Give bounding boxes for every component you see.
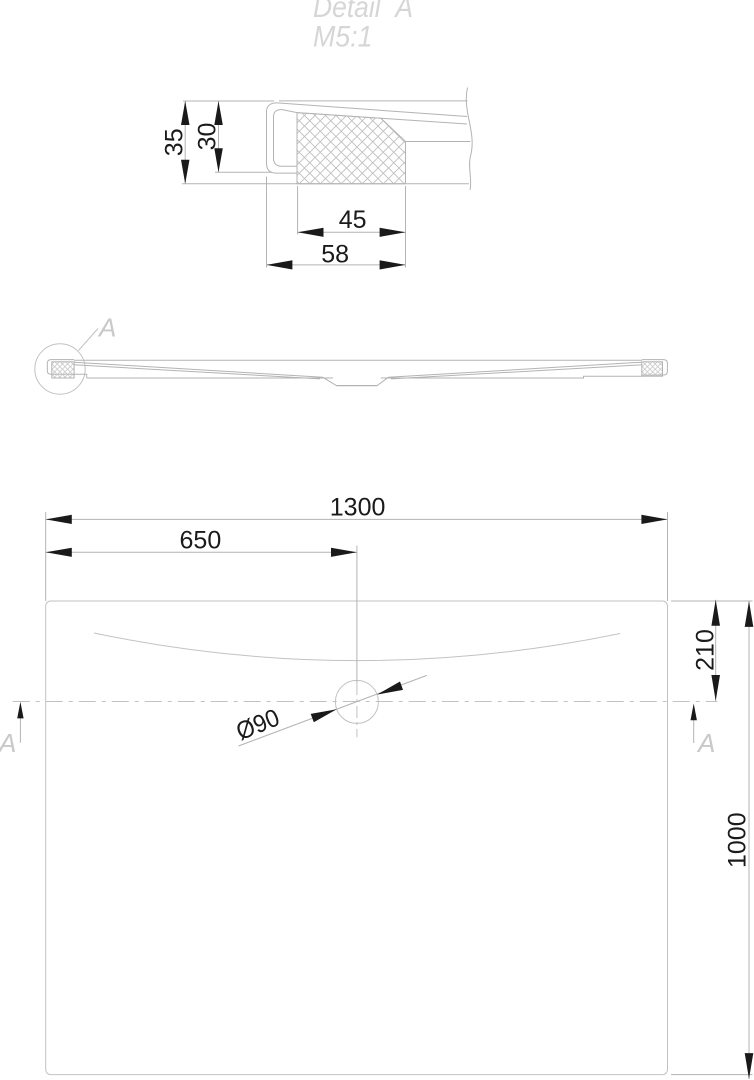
svg-text:30: 30 <box>193 123 221 151</box>
svg-text:A: A <box>696 728 715 758</box>
svg-text:M5:1: M5:1 <box>313 20 373 53</box>
svg-text:35: 35 <box>160 128 188 156</box>
svg-text:A: A <box>0 728 16 758</box>
svg-text:45: 45 <box>339 206 367 234</box>
svg-text:1000: 1000 <box>724 812 752 868</box>
svg-text:Ø90: Ø90 <box>232 704 283 746</box>
svg-text:A: A <box>97 313 116 343</box>
svg-text:1300: 1300 <box>330 493 386 521</box>
svg-text:58: 58 <box>321 240 349 268</box>
svg-text:210: 210 <box>691 629 719 671</box>
svg-text:650: 650 <box>180 526 222 554</box>
